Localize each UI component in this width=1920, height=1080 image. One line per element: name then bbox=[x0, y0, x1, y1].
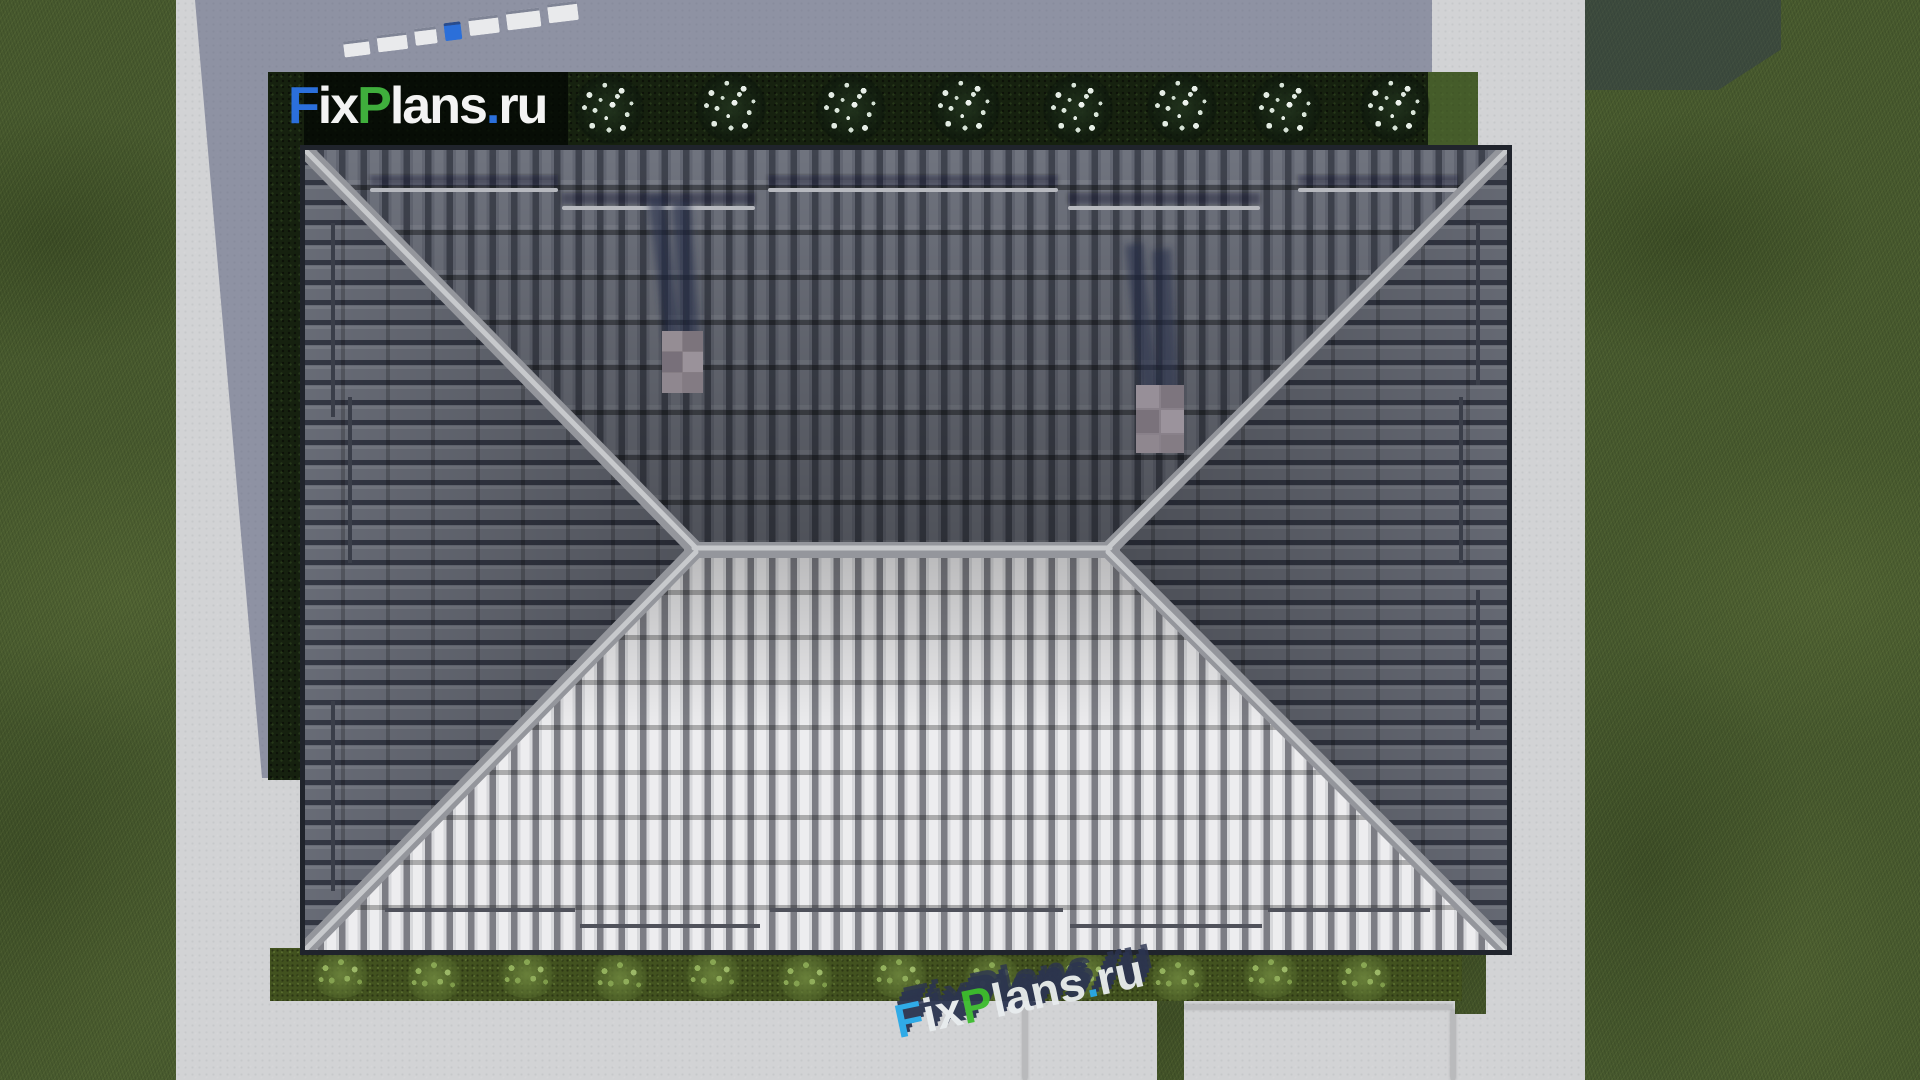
green-bush bbox=[775, 955, 837, 1001]
flower-bush bbox=[1360, 72, 1430, 142]
watermark-letter-base bbox=[343, 39, 371, 58]
concrete-joint-horizontal bbox=[1184, 1005, 1452, 1009]
green-bush bbox=[403, 955, 465, 1001]
chimney-1 bbox=[662, 331, 703, 393]
hip-roof bbox=[300, 145, 1512, 955]
flower-bush bbox=[930, 72, 1000, 142]
chimney-2 bbox=[1136, 385, 1184, 453]
watermark-letter-base-blue bbox=[443, 21, 462, 41]
green-bush bbox=[682, 952, 744, 998]
green-bush bbox=[310, 952, 372, 998]
aerial-render-canvas: FixPlans.ru FixPlans.ru bbox=[0, 0, 1920, 1080]
watermark-letter-base bbox=[376, 32, 408, 53]
watermark-letter-base bbox=[468, 15, 500, 37]
grass-strip-left bbox=[0, 0, 176, 1080]
logo-letters-lans: lans bbox=[390, 77, 486, 135]
flower-bush bbox=[816, 74, 886, 144]
concrete-joint-vertical-2 bbox=[1451, 1010, 1455, 1080]
hedge-top-lit-end bbox=[1428, 72, 1478, 148]
hedge-left bbox=[268, 72, 304, 780]
flower-bush bbox=[696, 72, 766, 142]
watermark-letter-base bbox=[414, 26, 438, 46]
green-bush bbox=[496, 952, 558, 998]
logo-letters-ix: ix bbox=[318, 77, 357, 135]
fixplans-logo: FixPlans.ru bbox=[288, 78, 546, 136]
logo-letters-ru: ru bbox=[498, 77, 546, 135]
logo-dot: . bbox=[486, 77, 498, 135]
flower-bush bbox=[1147, 72, 1217, 142]
green-bush bbox=[589, 955, 651, 1001]
grass-divider-strip bbox=[1157, 1000, 1184, 1080]
grass-field-right bbox=[1585, 0, 1920, 1080]
logo-letter-p: P bbox=[357, 77, 390, 135]
flower-bush bbox=[574, 74, 644, 144]
green-bush bbox=[1240, 952, 1302, 998]
green-bush bbox=[1333, 955, 1395, 1001]
flower-bush bbox=[1043, 74, 1113, 144]
flower-bush bbox=[1251, 74, 1321, 144]
logo-letter-f: F bbox=[288, 77, 318, 135]
watermark-letter-base bbox=[547, 1, 579, 24]
watermark-letter-base bbox=[505, 8, 541, 31]
green-bush bbox=[1147, 955, 1209, 1001]
